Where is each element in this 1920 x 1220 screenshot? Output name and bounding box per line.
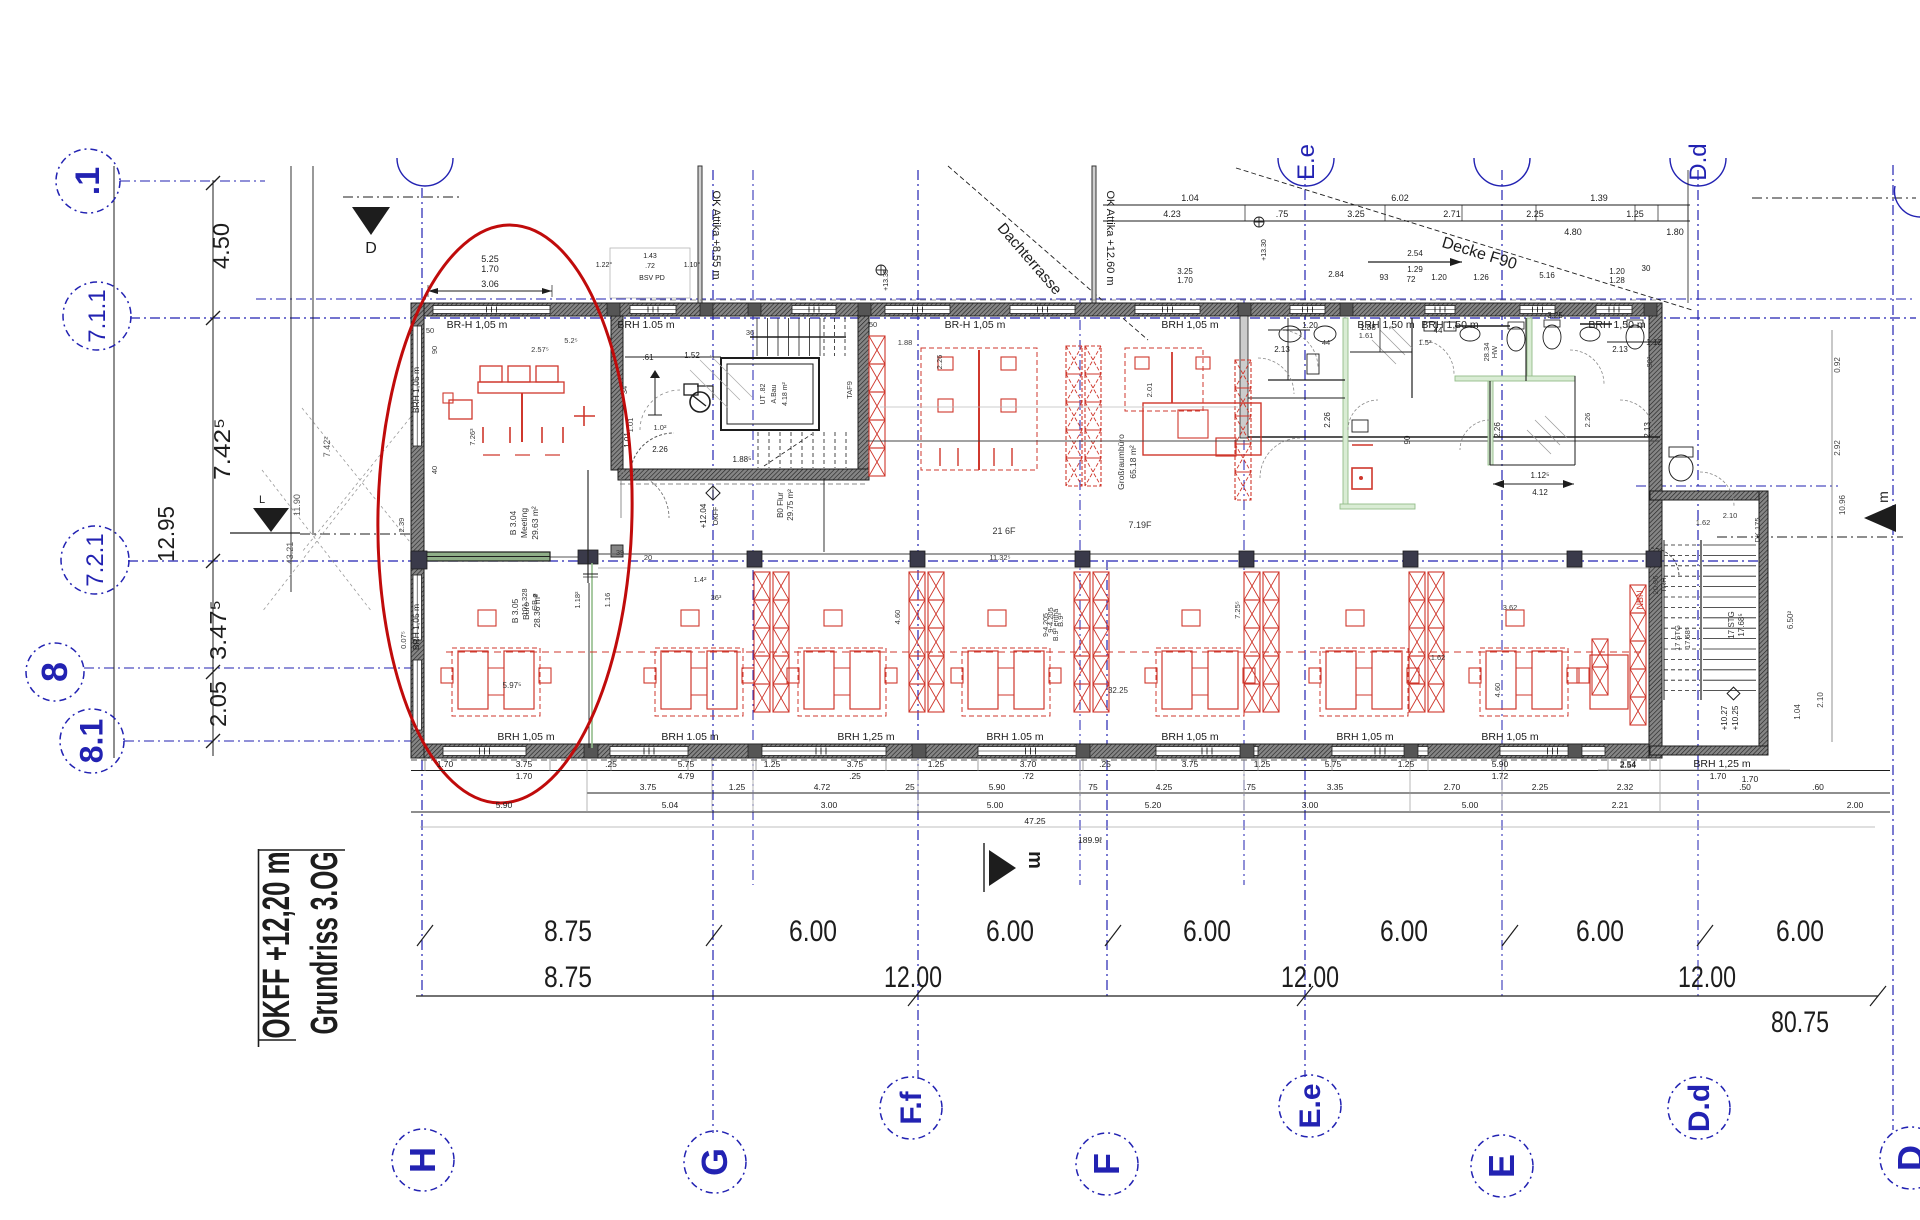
svg-text:BR-H 1,05 m: BR-H 1,05 m	[945, 319, 1006, 331]
svg-text:Großraumbüro: Großraumbüro	[1116, 434, 1126, 490]
svg-text:BRH 1,05 m: BRH 1,05 m	[497, 731, 554, 743]
svg-text:GB ø: GB ø	[530, 593, 539, 611]
svg-text:4.25: 4.25	[1156, 782, 1173, 792]
svg-text:2.10: 2.10	[1816, 692, 1825, 708]
svg-text:.75: .75	[1276, 209, 1289, 219]
svg-text:H: H	[402, 1147, 443, 1173]
svg-text:11.32⁵: 11.32⁵	[989, 553, 1010, 562]
svg-text:B0 Flur: B0 Flur	[776, 492, 785, 518]
svg-text:2.54: 2.54	[1407, 249, 1423, 258]
svg-text:4.79: 4.79	[678, 771, 695, 781]
svg-text:6.00: 6.00	[986, 915, 1034, 948]
svg-text:1.04: 1.04	[1793, 704, 1802, 720]
svg-text:5.75: 5.75	[1325, 759, 1342, 769]
svg-text:F: F	[1086, 1153, 1127, 1175]
svg-text:.72: .72	[1022, 771, 1034, 781]
svg-text:4.50: 4.50	[208, 223, 234, 269]
svg-text:UT .82: UT .82	[760, 383, 767, 404]
svg-text:1.12: 1.12	[1646, 338, 1662, 347]
svg-text:5.90: 5.90	[989, 782, 1006, 792]
svg-text:29.63 m²: 29.63 m²	[530, 506, 540, 540]
svg-text:4.23: 4.23	[1163, 209, 1181, 219]
svg-text:90: 90	[1403, 435, 1412, 444]
svg-text:1.62: 1.62	[1696, 518, 1711, 527]
svg-text:20: 20	[644, 553, 652, 562]
svg-text:1.25: 1.25	[729, 782, 746, 792]
svg-text:8.1: 8.1	[74, 719, 110, 763]
svg-text:2.26: 2.26	[652, 445, 668, 454]
svg-text:9-4.205: 9-4.205	[1046, 607, 1055, 632]
svg-text:2.71: 2.71	[1443, 209, 1461, 219]
svg-text:5.90: 5.90	[496, 800, 513, 810]
svg-text:BRH 1,05 m: BRH 1,05 m	[411, 604, 421, 650]
svg-text:7.42⁵: 7.42⁵	[209, 418, 235, 480]
svg-text:3.47⁵: 3.47⁵	[205, 600, 231, 660]
svg-text:BRH 1,50 m: BRH 1,50 m	[1588, 319, 1645, 331]
svg-text:5.97⁵: 5.97⁵	[503, 681, 522, 690]
svg-text:.61: .61	[642, 353, 654, 362]
svg-text:3.75: 3.75	[640, 782, 657, 792]
svg-text:m: m	[1024, 851, 1046, 869]
svg-text:17.68⁵: 17.68⁵	[1683, 627, 1692, 649]
svg-text:3.75: 3.75	[516, 759, 533, 769]
svg-text:BRH 1,05 m: BRH 1,05 m	[1336, 731, 1393, 743]
svg-text:1.0²: 1.0²	[654, 423, 667, 432]
svg-text:TRH: TRH	[1659, 577, 1668, 592]
svg-text:12.00: 12.00	[884, 961, 942, 994]
svg-text:+13.30: +13.30	[1261, 239, 1268, 261]
svg-text:B.9³: B.9³	[1056, 613, 1065, 627]
svg-text:6.00: 6.00	[1776, 915, 1824, 948]
svg-text:6.02: 6.02	[1391, 193, 1409, 203]
svg-text:44: 44	[1322, 338, 1330, 347]
svg-text:47.25: 47.25	[1024, 816, 1046, 826]
svg-text:3.25: 3.25	[1547, 311, 1563, 320]
svg-text:6.00: 6.00	[1183, 915, 1231, 948]
svg-text:3.25: 3.25	[1177, 267, 1193, 276]
svg-text:1.70: 1.70	[1710, 771, 1727, 781]
svg-text:+13.35: +13.35	[883, 269, 890, 291]
svg-text:0.92: 0.92	[1833, 357, 1842, 373]
svg-text:+12.04: +12.04	[699, 503, 708, 528]
svg-text:2.84: 2.84	[1328, 270, 1344, 279]
svg-text:2.26: 2.26	[1323, 412, 1332, 428]
svg-text:6.00: 6.00	[1380, 915, 1428, 948]
svg-text:OKFF: OKFF	[713, 507, 720, 526]
svg-text:7.2.1: 7.2.1	[82, 533, 109, 586]
svg-text:93: 93	[1380, 273, 1389, 282]
svg-text:.75: .75	[1244, 782, 1256, 792]
svg-text:3.06: 3.06	[481, 279, 499, 289]
svg-text:E: E	[1481, 1154, 1522, 1178]
svg-text:75: 75	[1088, 782, 1098, 792]
svg-text:3.00: 3.00	[1302, 800, 1319, 810]
svg-text:72: 72	[1407, 275, 1416, 284]
svg-text:2.32: 2.32	[1617, 782, 1634, 792]
svg-text:1.16: 1.16	[603, 593, 612, 608]
svg-text:BRH 1,05 m: BRH 1,05 m	[1161, 731, 1218, 743]
svg-text:A.Bau: A.Bau	[771, 384, 778, 403]
svg-text:101.328: 101.328	[520, 588, 529, 615]
svg-text:50: 50	[869, 320, 877, 329]
svg-text:2.13: 2.13	[1643, 422, 1652, 438]
svg-text:0.07⁵: 0.07⁵	[399, 631, 408, 649]
svg-text:BRH 1.05 m: BRH 1.05 m	[986, 731, 1043, 743]
svg-text:6.00: 6.00	[789, 915, 837, 948]
svg-text:189.9ℓ: 189.9ℓ	[1078, 835, 1102, 845]
svg-text:G: G	[694, 1148, 735, 1176]
svg-text:TAF9: TAF9	[845, 381, 854, 399]
svg-text:5.25: 5.25	[481, 254, 499, 264]
svg-text:1.25: 1.25	[1254, 759, 1271, 769]
svg-text:5.2⁵: 5.2⁵	[564, 336, 578, 345]
svg-text:36: 36	[746, 328, 754, 337]
svg-text:1.25: 1.25	[764, 759, 781, 769]
svg-text:29.75 m²: 29.75 m²	[786, 489, 795, 521]
svg-text:.25: .25	[849, 771, 861, 781]
svg-text:50: 50	[426, 326, 434, 335]
svg-text:25: 25	[905, 782, 915, 792]
svg-text:6.50²: 6.50²	[1786, 611, 1795, 630]
svg-text:Dachterrasse: Dachterrasse	[994, 220, 1065, 298]
svg-text:1.62: 1.62	[1431, 653, 1446, 662]
svg-text:1.88⁵: 1.88⁵	[733, 455, 752, 464]
svg-text:7.42²: 7.42²	[322, 437, 332, 458]
svg-text:2.26: 2.26	[1583, 413, 1592, 428]
svg-text:90: 90	[430, 346, 439, 354]
svg-text:1.12⁵: 1.12⁵	[1531, 471, 1550, 480]
svg-text:Grundriss 3.OG: Grundriss 3.OG	[304, 852, 346, 1035]
svg-text:Decke F90: Decke F90	[1440, 234, 1519, 273]
svg-text:2.70: 2.70	[1444, 782, 1461, 792]
svg-text:4.60: 4.60	[893, 610, 902, 625]
svg-text:39: 39	[616, 548, 624, 557]
svg-text:D.d: D.d	[1683, 1084, 1716, 1132]
svg-text:3.00: 3.00	[821, 800, 838, 810]
svg-text:2.26: 2.26	[1493, 422, 1502, 438]
svg-text:1.25: 1.25	[1398, 759, 1415, 769]
svg-text:1.26: 1.26	[1473, 273, 1489, 282]
svg-text:1.39: 1.39	[1590, 193, 1608, 203]
svg-text:1.22°: 1.22°	[596, 261, 613, 269]
svg-text:HW: HW	[1490, 345, 1499, 358]
svg-text:1.18²: 1.18²	[573, 591, 582, 609]
svg-text:2.13: 2.13	[1612, 345, 1628, 354]
svg-text:1.25: 1.25	[928, 759, 945, 769]
svg-text:1.10°: 1.10°	[684, 261, 701, 269]
svg-text:2.25: 2.25	[1526, 209, 1544, 219]
svg-text:B 3.05: B 3.05	[510, 598, 520, 623]
svg-text:2.10: 2.10	[1723, 511, 1738, 520]
svg-text:2.01: 2.01	[1145, 383, 1154, 398]
svg-text:4.18 m²: 4.18 m²	[782, 381, 789, 405]
svg-text:3.75: 3.75	[1182, 759, 1199, 769]
svg-text:4.60: 4.60	[1493, 683, 1502, 698]
svg-text:1.29: 1.29	[1407, 265, 1423, 274]
svg-text:.72: .72	[645, 263, 655, 270]
svg-text:1.70: 1.70	[437, 759, 454, 769]
svg-text:1.88: 1.88	[898, 338, 913, 347]
svg-text:2.54: 2.54	[1620, 761, 1636, 770]
svg-text:BRH 1,25 m: BRH 1,25 m	[837, 731, 894, 743]
svg-text:1.70: 1.70	[516, 771, 533, 781]
svg-text:DK 175: DK 175	[1753, 517, 1762, 542]
svg-text:BRH 1,05 m: BRH 1,05 m	[1481, 731, 1538, 743]
svg-text:3.62: 3.62	[1503, 603, 1518, 612]
svg-text:1.4²: 1.4²	[694, 575, 707, 584]
svg-text:32.25: 32.25	[1108, 686, 1129, 695]
svg-text:80.75: 80.75	[1771, 1006, 1829, 1039]
svg-text:E.e: E.e	[1294, 1083, 1327, 1128]
svg-text:21 6F: 21 6F	[992, 526, 1016, 536]
svg-text:BSV PD: BSV PD	[639, 275, 665, 282]
svg-text:D: D	[1890, 1145, 1920, 1171]
svg-text:BRH 1,50 m: BRH 1,50 m	[1357, 319, 1414, 331]
svg-text:BRH 1,05 m: BRH 1,05 m	[411, 367, 421, 413]
svg-text:1.28: 1.28	[1609, 276, 1625, 285]
svg-text:E.e: E.e	[1293, 144, 1320, 180]
svg-text:3.25: 3.25	[1347, 209, 1365, 219]
svg-text:36³: 36³	[711, 593, 722, 602]
svg-text:1.70: 1.70	[1177, 276, 1193, 285]
svg-text:3.75: 3.75	[847, 759, 864, 769]
svg-text:1.70: 1.70	[481, 264, 499, 274]
svg-text:1.43: 1.43	[643, 253, 657, 260]
svg-text:90²: 90²	[1645, 356, 1654, 367]
svg-text:1.72: 1.72	[1492, 771, 1509, 781]
svg-text:7.1.1: 7.1.1	[84, 289, 111, 342]
svg-text:L: L	[259, 494, 265, 506]
svg-text:BR-H 1,05 m: BR-H 1,05 m	[447, 319, 508, 331]
svg-text:2.00: 2.00	[1847, 800, 1864, 810]
svg-text:2.57⁵: 2.57⁵	[531, 345, 549, 354]
svg-text:BRH 1.05 m: BRH 1.05 m	[661, 731, 718, 743]
svg-text:30: 30	[1642, 264, 1651, 273]
svg-text:.1: .1	[69, 167, 107, 195]
svg-text:4.80: 4.80	[1564, 227, 1582, 237]
svg-text:43.21: 43.21	[285, 542, 295, 565]
svg-text:D: D	[365, 240, 377, 257]
svg-text:4.12: 4.12	[1532, 488, 1548, 497]
svg-text:.60: .60	[1812, 782, 1824, 792]
svg-text:5.00: 5.00	[1462, 800, 1479, 810]
svg-text:3.70: 3.70	[1020, 759, 1037, 769]
svg-text:1.04: 1.04	[1181, 193, 1199, 203]
svg-text:6.00: 6.00	[1576, 915, 1624, 948]
svg-text:12.00: 12.00	[1678, 961, 1736, 994]
svg-text:1.20: 1.20	[1431, 273, 1447, 282]
svg-text:1.20: 1.20	[1302, 321, 1318, 330]
svg-text:1.25: 1.25	[1626, 209, 1644, 219]
svg-text:+10.25: +10.25	[1731, 705, 1740, 730]
svg-text:1.80: 1.80	[1666, 227, 1684, 237]
svg-text:1.61: 1.61	[1359, 331, 1374, 340]
svg-text:8.75: 8.75	[544, 915, 592, 948]
svg-text:BRH 1,25 m: BRH 1,25 m	[1693, 758, 1750, 770]
svg-text:7.19F: 7.19F	[1128, 520, 1152, 530]
svg-text:7.26³: 7.26³	[468, 428, 477, 446]
svg-text:2.39: 2.39	[397, 518, 406, 533]
svg-text:12.95: 12.95	[153, 506, 179, 562]
svg-text:40: 40	[430, 466, 439, 474]
svg-text:17 STG: 17 STG	[1727, 611, 1736, 639]
svg-text:5.16: 5.16	[1539, 271, 1555, 280]
svg-text:2.92: 2.92	[1833, 440, 1842, 456]
svg-text:8.75: 8.75	[544, 961, 592, 994]
svg-text:+10.27: +10.27	[1720, 705, 1729, 730]
svg-text:NBN: NBN	[1635, 590, 1645, 609]
svg-text:2.26: 2.26	[935, 355, 944, 370]
svg-text:1.70: 1.70	[1742, 774, 1759, 784]
svg-text:5.00: 5.00	[987, 800, 1004, 810]
svg-text:2.21: 2.21	[1612, 800, 1629, 810]
svg-text:5.20: 5.20	[1145, 800, 1162, 810]
svg-text:OKFF +12,20 m: OKFF +12,20 m	[256, 852, 298, 1039]
svg-text:1.52: 1.52	[684, 351, 700, 360]
svg-text:10.96: 10.96	[1838, 494, 1847, 515]
svg-text:7.25⁵: 7.25⁵	[1233, 601, 1242, 619]
svg-text:BRH 1,50 m: BRH 1,50 m	[1421, 319, 1478, 331]
svg-text:F.f: F.f	[895, 1090, 928, 1124]
svg-text:5.04: 5.04	[662, 800, 679, 810]
svg-text:.25: .25	[1099, 759, 1111, 769]
svg-text:65.18 m²: 65.18 m²	[1128, 445, 1138, 479]
svg-text:D.d: D.d	[1685, 143, 1712, 180]
svg-text:2.05: 2.05	[205, 681, 231, 727]
svg-text:11.90: 11.90	[292, 494, 302, 516]
svg-text:17.68⁵: 17.68⁵	[1737, 613, 1746, 636]
svg-text:OK Attika +8.55 m: OK Attika +8.55 m	[710, 191, 722, 280]
svg-text:17 STG: 17 STG	[1673, 625, 1682, 651]
svg-text:BRH 1.05 m: BRH 1.05 m	[617, 319, 674, 331]
svg-text:1.5²: 1.5²	[1419, 338, 1432, 347]
svg-text:5.90: 5.90	[1492, 759, 1509, 769]
svg-text:4.72: 4.72	[814, 782, 831, 792]
svg-text:Meeting: Meeting	[519, 508, 529, 539]
svg-text:5.75: 5.75	[678, 759, 695, 769]
svg-text:.25: .25	[605, 759, 617, 769]
svg-text:m: m	[1875, 491, 1891, 503]
svg-text:B 3.04: B 3.04	[508, 510, 518, 535]
svg-text:2.25: 2.25	[1532, 782, 1549, 792]
svg-text:3.35: 3.35	[1327, 782, 1344, 792]
svg-text:BRH 1,05 m: BRH 1,05 m	[1161, 319, 1218, 331]
svg-text:1.20: 1.20	[1609, 267, 1625, 276]
svg-text:8: 8	[34, 662, 75, 682]
